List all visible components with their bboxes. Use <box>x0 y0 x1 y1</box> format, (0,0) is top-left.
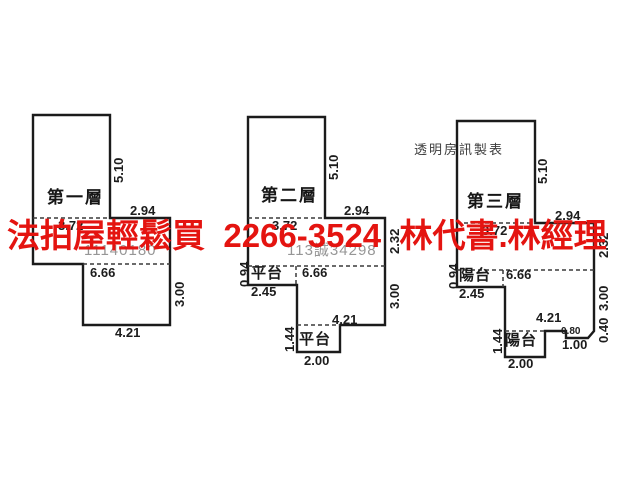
room-label: 平台 <box>251 266 283 281</box>
dimension-label-vertical: 1.44 <box>283 327 296 352</box>
dimension-label: 4.21 <box>332 313 357 326</box>
dimension-label: 4.21 <box>115 326 140 339</box>
dimension-label-small: 0.80 <box>561 327 580 337</box>
dimension-label: 2.00 <box>508 357 533 370</box>
dimension-label-vertical: 5.10 <box>327 155 340 180</box>
dimension-label: 6.66 <box>302 266 327 279</box>
dimension-label-vertical: 3.00 <box>388 284 401 309</box>
floorplan-canvas: 法拍屋輕鬆買 2266-3524 林代書.林經理 第一層5.102.943.72… <box>0 0 640 480</box>
dimension-label-vertical: 3.00 <box>597 286 610 311</box>
dimension-label: 2.94 <box>344 204 369 217</box>
dimension-label: 6.66 <box>90 266 115 279</box>
agency-watermark-overlay: 法拍屋輕鬆買 2266-3524 林代書.林經理 <box>7 219 607 252</box>
dimension-label: 4.21 <box>536 311 561 324</box>
dimension-label-vertical: 1.44 <box>491 329 504 354</box>
room-label: 平台 <box>299 332 331 347</box>
dimension-label-vertical: 0.94 <box>238 262 251 287</box>
dimension-label: 1.00 <box>562 338 587 351</box>
floor-title: 第二層 <box>261 187 318 204</box>
dimension-label: 2.45 <box>251 285 276 298</box>
dimension-label-vertical: 5.10 <box>112 158 125 183</box>
dimension-label-vertical: 5.10 <box>536 159 549 184</box>
floor-title: 第一層 <box>47 189 104 206</box>
floor-title: 第三層 <box>467 193 524 210</box>
source-note: 透明房訊製表 <box>414 143 504 156</box>
room-label: 陽台 <box>505 333 537 348</box>
room-label: 陽台 <box>459 268 491 283</box>
dimension-label-vertical: 3.00 <box>173 282 186 307</box>
dimension-label: 2.45 <box>459 287 484 300</box>
dimension-label: 6.66 <box>506 268 531 281</box>
dimension-label: 2.94 <box>130 204 155 217</box>
dimension-label: 2.00 <box>304 354 329 367</box>
dimension-label-vertical: 0.40 <box>597 318 610 343</box>
